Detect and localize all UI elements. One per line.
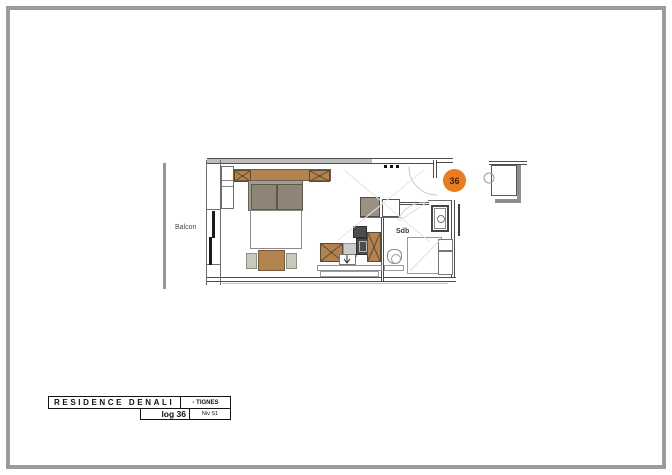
kitchen-appliance	[353, 226, 367, 238]
elevator-right-wall	[517, 165, 521, 203]
chair	[286, 253, 297, 269]
balcony-label: Balcon	[175, 224, 196, 232]
chair	[246, 253, 257, 269]
wall-bathroom-top	[400, 202, 429, 205]
wall-top-left	[207, 158, 372, 164]
balcony-rail	[163, 163, 166, 289]
entry-door-jamb	[433, 160, 437, 178]
title-block-row2: log 36 Niv S1	[140, 408, 231, 420]
kitchen-drawer-unit	[339, 254, 356, 265]
sliding-door-panel-2	[209, 237, 212, 265]
entry-cabinet-bottom	[438, 251, 453, 275]
vent-mark-icon	[396, 165, 399, 168]
balcony-slab-edge	[222, 283, 448, 284]
entry-cabinet-top	[438, 239, 453, 251]
washbasin-bowl	[437, 215, 445, 223]
toilet	[387, 249, 402, 264]
closet-x-gray	[360, 197, 380, 217]
cabinet-shelf-line	[222, 186, 233, 187]
sink-basin	[359, 241, 367, 252]
vent-mark-icon	[390, 165, 393, 168]
sliding-door-panel-1	[212, 211, 215, 238]
pillow	[251, 184, 277, 210]
closet-base-line	[360, 217, 402, 218]
level-label: Niv S1	[189, 409, 230, 419]
washbasin-unit	[431, 205, 449, 232]
cabinet-shelf-line	[222, 180, 233, 181]
wall-bathroom-partition	[381, 218, 384, 281]
bed-sheet	[250, 210, 302, 249]
elevator-shaft-x-icon	[491, 165, 517, 196]
residence-location: - TIGNES	[180, 397, 230, 408]
bed-mattress	[248, 180, 303, 211]
unit-label: log 36	[141, 409, 189, 419]
toilet-base	[384, 265, 404, 271]
toilet-bowl	[391, 254, 401, 264]
shower	[407, 237, 442, 274]
drawing-page: Balcon Sdb	[0, 0, 672, 475]
closet-x-white	[382, 199, 400, 217]
unit-number-badge: 36	[443, 169, 466, 192]
pillow	[277, 184, 303, 210]
vent-mark-icon	[384, 165, 387, 168]
bay-door-sill-top	[206, 209, 221, 210]
elevator-bottom-wall	[495, 199, 521, 203]
residence-name: RESIDENCE DENALI	[49, 398, 180, 407]
wardrobe-x-icon	[309, 170, 330, 182]
wall-top-right	[372, 158, 437, 164]
kitchen-plinth	[320, 271, 379, 277]
wall-right-outer-edge	[458, 204, 460, 236]
wall-top-stub	[437, 158, 453, 163]
kitchen-tall-cabinet-x	[367, 232, 381, 262]
bathroom-label: Sdb	[396, 228, 409, 236]
wall-bottom	[207, 277, 456, 282]
wall-left-outer	[206, 160, 207, 285]
dining-table	[258, 250, 285, 271]
